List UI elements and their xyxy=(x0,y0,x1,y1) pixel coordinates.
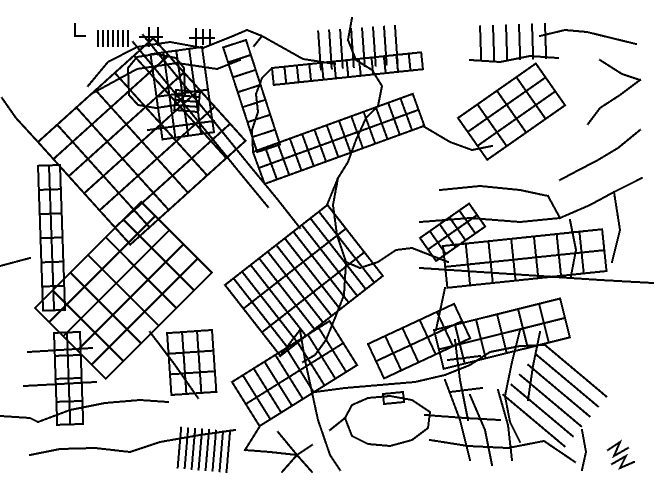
topright-long-diag xyxy=(540,30,636,44)
topright-block-grid-cross-street xyxy=(516,77,545,119)
bottomleft-ladder-a-cross-street xyxy=(55,355,81,356)
left-mid-diagonal-grid-cross-street xyxy=(141,202,212,273)
topcenter-diag-ladder-cross-street xyxy=(327,125,339,157)
steep-ladder-topcenter-cross-street xyxy=(233,70,256,77)
street-network-map xyxy=(0,0,655,484)
br-zigzag-a xyxy=(608,442,628,456)
central-ladder-south-cross-street xyxy=(319,328,347,372)
left-mid-diagonal-grid-cross-street xyxy=(88,255,159,326)
central-ladder-grid-cross-street xyxy=(234,278,289,349)
bottomleft-ladder-b-cross-street xyxy=(169,351,214,354)
left-edge-ladder-cross-street xyxy=(38,165,60,166)
topcenter-diag-ladder-cross-street xyxy=(314,130,326,162)
topcenter-ladder-cross-street xyxy=(297,65,299,82)
bottomcenter-fork-a xyxy=(278,432,312,472)
north-comb-street xyxy=(373,28,376,66)
fan-cross-a xyxy=(430,440,575,462)
topright-block-grid-cross-street xyxy=(536,64,565,106)
topright-block-grid-cross-street xyxy=(477,104,506,146)
bottomcenter-road xyxy=(245,450,297,455)
center-rung-b xyxy=(450,388,482,392)
left-mid-diagonal-grid-cross-street xyxy=(106,237,177,308)
rightmid-vert-a xyxy=(612,192,620,262)
park-blob-spur xyxy=(330,418,345,430)
central-ladder-grid-cross-street xyxy=(319,212,374,283)
topcenter-ladder-cross-street xyxy=(322,63,324,80)
topright-edge-a xyxy=(600,60,640,80)
central-ladder-south-street xyxy=(232,321,330,382)
center-south-grid-cross-street xyxy=(402,328,418,362)
bottomleft-ladder-b-street xyxy=(197,331,201,393)
topcenter-ladder-cross-street xyxy=(421,52,423,69)
left-edge-ladder-cross-street xyxy=(39,189,61,190)
center-south-grid-street xyxy=(376,321,462,361)
central-ladder-south-street xyxy=(246,343,344,404)
bottomleft-ladder-b-cross-street xyxy=(170,371,215,374)
topright-block-grid-cross-street xyxy=(458,118,487,160)
topright-comb-street xyxy=(545,24,546,58)
north-comb-street xyxy=(340,30,343,68)
central-ladder-south-cross-street xyxy=(265,362,293,406)
topcenter-diag-ladder-cross-street xyxy=(278,143,290,175)
map-viewport xyxy=(0,0,655,484)
central-ladder-south-cross-street xyxy=(254,368,282,412)
topright-comb-street xyxy=(532,24,533,58)
topcenter-ladder-cross-street xyxy=(284,67,286,84)
right-mid-grid-street xyxy=(443,229,602,246)
topleft-diagonal-grid-cross-street xyxy=(76,107,168,210)
center-right-hatch-cross-street xyxy=(420,238,436,261)
left-edge-road-a xyxy=(0,416,38,422)
topright-block-grid-cross-street xyxy=(497,91,526,133)
topright-edge-c xyxy=(560,130,640,180)
central-ladder-grid-cross-street xyxy=(276,245,331,316)
left-mid-diagonal-grid-cross-street xyxy=(123,220,194,291)
topcenter-diag-ladder-cross-street xyxy=(302,134,314,166)
center-right-hatch-cross-street xyxy=(469,204,485,227)
bottomleft-ladder-b-street xyxy=(212,330,216,392)
br-zigzag-b xyxy=(612,456,634,468)
central-ladder-grid-cross-street xyxy=(302,225,357,296)
bottom-fringe-comb-street xyxy=(192,429,195,469)
ne-diagonal-road xyxy=(247,30,335,64)
central-ladder-south-cross-street xyxy=(275,355,303,399)
central-ladder-grid-cross-street xyxy=(285,238,340,309)
steep-ladder-topcenter-cross-street xyxy=(223,40,246,47)
topcenter-diag-ladder-cross-street xyxy=(351,116,363,148)
topcenter-diag-ladder-cross-street xyxy=(413,94,425,126)
topcenter-diag-ladder-cross-street xyxy=(290,139,302,171)
small-rung-stack-street xyxy=(174,110,198,112)
center-south-grid-cross-street xyxy=(385,336,401,370)
center-right-hatch-cross-street xyxy=(440,224,456,247)
topcenter-diag-ladder-cross-street xyxy=(339,121,351,153)
central-ladder-south-cross-street xyxy=(243,375,271,419)
l-glyph xyxy=(75,24,85,36)
topright-comb-street xyxy=(519,25,520,59)
center-right-hatch-cross-street xyxy=(449,217,465,240)
br-vert-road xyxy=(582,430,586,470)
steep-ladder-topcenter-cross-street xyxy=(247,115,270,122)
left-mid-diagonal-grid-cross-street xyxy=(35,308,106,379)
steep-ladder-topcenter-cross-street xyxy=(252,130,275,137)
north-comb-street xyxy=(362,28,365,66)
rightmid-upper-road xyxy=(440,186,548,196)
fan-road-b xyxy=(470,395,492,465)
topcenter-ladder-cross-street xyxy=(272,68,274,85)
topcenter-diag-ladder-cross-street xyxy=(400,98,412,130)
bottom-fringe-comb-street xyxy=(227,432,230,472)
center-right-hatch-cross-street xyxy=(459,210,475,233)
fan-cross-b xyxy=(425,415,500,420)
topcenter-diag-ladder-cross-street xyxy=(364,112,376,144)
bottom-fringe-comb-street xyxy=(220,431,223,471)
central-ladder-grid-cross-street xyxy=(251,265,306,336)
bottomleft-curve-main xyxy=(30,430,235,455)
ladder-south-link xyxy=(245,426,260,450)
steep-ladder-topcenter-cross-street xyxy=(243,100,266,107)
bottomleft-rung-a xyxy=(28,348,92,352)
topcenter-ladder-cross-street xyxy=(409,54,411,71)
bottomleft-ladder-a-cross-street xyxy=(57,424,83,425)
bottomleft-ladder-b-street xyxy=(182,332,186,394)
diag-ladder-east-road xyxy=(423,126,492,150)
rightmid-vert-b xyxy=(570,220,576,276)
topcenter-ladder-cross-street xyxy=(347,60,349,77)
central-ladder-south-cross-street xyxy=(330,321,358,365)
central-ladder-grid-cross-street xyxy=(225,285,280,356)
topright-comb-street xyxy=(480,26,481,60)
rightmid-connect xyxy=(548,196,560,218)
topright-comb-street xyxy=(506,25,507,59)
central-ladder-grid-cross-street xyxy=(242,272,297,343)
central-ladder-grid-cross-street xyxy=(268,252,323,323)
topcenter-diag-ladder-cross-street xyxy=(388,103,400,135)
left-edge-ladder-cross-street xyxy=(43,310,65,311)
center-south-grid-cross-street xyxy=(368,344,384,378)
bottomleft-rung-b xyxy=(24,382,96,386)
ne-branch xyxy=(254,36,262,46)
bottomleft-ladder-a-cross-street xyxy=(54,332,80,333)
topcenter-diag-ladder-cross-street xyxy=(265,148,277,180)
central-ladder-grid-cross-street xyxy=(310,218,365,289)
bottomleft-ladder-b-street xyxy=(167,333,171,395)
topright-edge-b xyxy=(588,80,640,124)
center-south-grid-cross-street xyxy=(420,320,436,354)
left-edge-ladder-cross-street xyxy=(41,237,63,238)
topcenter-diag-ladder-cross-street xyxy=(253,152,265,184)
bottomleft-ladder-a-cross-street xyxy=(56,378,82,379)
central-ladder-grid-cross-street xyxy=(259,258,314,329)
left-edge-road-b xyxy=(0,258,30,266)
central-ladder-south-cross-street xyxy=(232,382,260,426)
left-edge-ladder-cross-street xyxy=(40,213,62,214)
bottom-fringe-comb-street xyxy=(206,430,209,470)
bottom-fringe-comb-street xyxy=(178,428,181,468)
nw-corner-road xyxy=(2,98,38,142)
bottomleft-ladder-b-cross-street xyxy=(167,330,212,333)
right-mid-grid-street xyxy=(445,250,604,267)
topcenter-ladder-cross-street xyxy=(309,64,311,81)
left-edge-ladder-cross-street xyxy=(42,286,64,287)
topright-comb-base xyxy=(470,56,558,62)
bottomleft-diag xyxy=(150,332,198,398)
topcenter-diag-ladder-cross-street xyxy=(376,107,388,139)
left-edge-ladder-cross-street xyxy=(41,262,63,263)
road-lines-layer xyxy=(0,18,653,472)
topright-comb-street xyxy=(493,26,494,60)
bottom-fringe-comb-street xyxy=(185,428,188,468)
bottom-fringe-comb-street xyxy=(213,431,216,471)
bottomleft-ladder-a-cross-street xyxy=(56,401,82,402)
topleft-diagonal-grid-cross-street xyxy=(57,125,149,228)
